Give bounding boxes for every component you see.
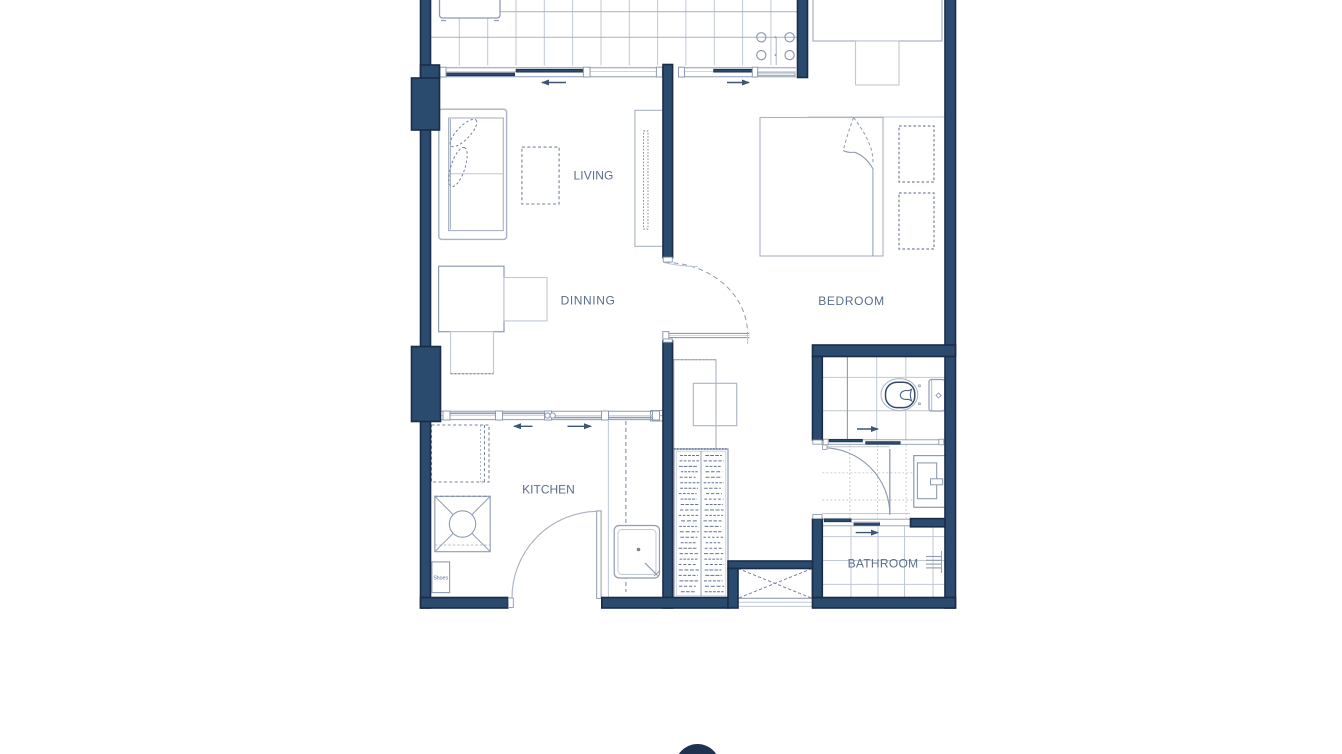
svg-text:KITCHEN: KITCHEN (522, 482, 575, 496)
svg-text:BATHROOM: BATHROOM (848, 557, 919, 571)
svg-text:LIVING: LIVING (574, 169, 614, 183)
svg-text:Shoes: Shoes (433, 576, 448, 582)
svg-text:BEDROOM: BEDROOM (818, 294, 885, 308)
svg-text:DINNING: DINNING (561, 294, 616, 308)
